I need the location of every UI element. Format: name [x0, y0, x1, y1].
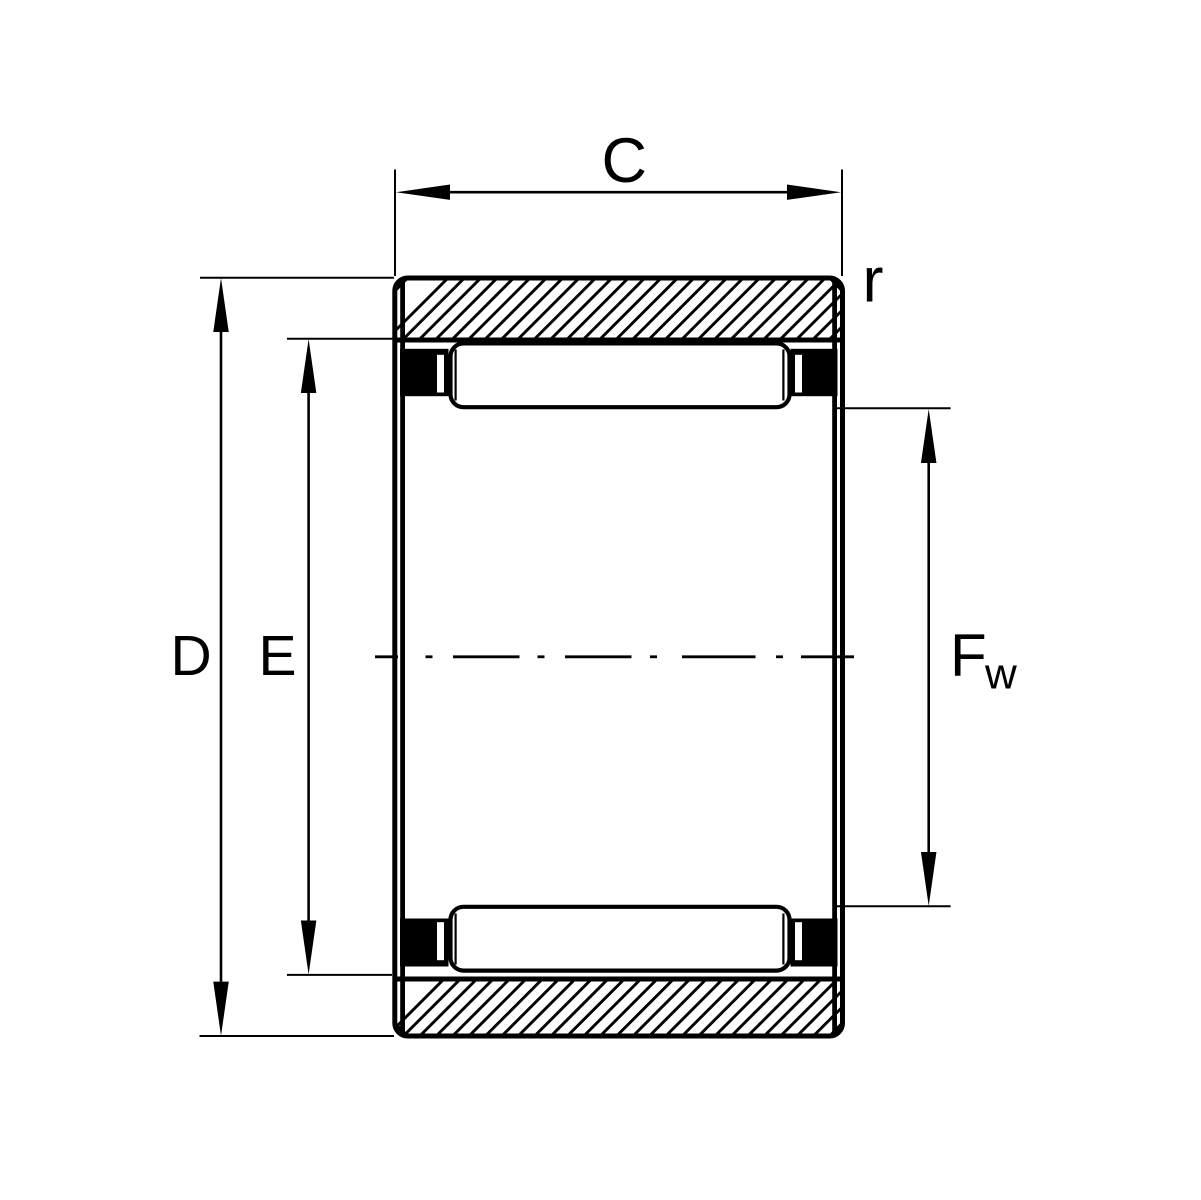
svg-text:C: C: [602, 126, 648, 196]
svg-text:E: E: [259, 624, 297, 688]
svg-text:D: D: [171, 624, 212, 688]
svg-text:r: r: [863, 246, 884, 316]
svg-text:w: w: [984, 650, 1017, 699]
svg-text:F: F: [950, 622, 987, 689]
